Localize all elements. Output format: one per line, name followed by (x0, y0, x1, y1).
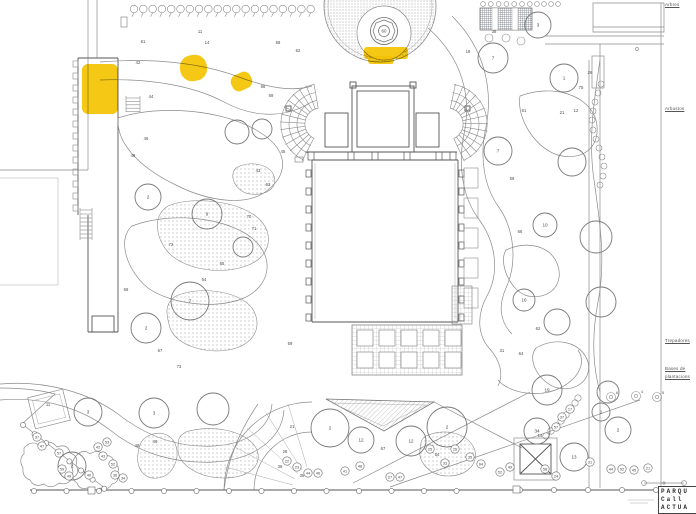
bush-icon (592, 99, 598, 105)
plan-number-label: 42 (136, 60, 141, 65)
pilaster (459, 224, 464, 231)
tree-number: 7 (497, 149, 500, 154)
stair-step (280, 126, 305, 130)
tree-number: 3 (537, 23, 540, 28)
fountain-label: 60 (382, 29, 387, 34)
street-tree-icon (223, 5, 231, 13)
planter-box (464, 258, 478, 278)
circled-number-text: 35 (468, 456, 472, 460)
pilaster (306, 260, 311, 267)
plan-number-label: 21 (290, 424, 295, 429)
stair-step (306, 86, 315, 109)
street-tree-stem (244, 13, 246, 17)
planter-box (464, 228, 478, 248)
street-tree-icon (158, 5, 166, 13)
street-tree-stem (299, 13, 301, 17)
scale-bar-icon (642, 481, 687, 486)
parterre-bed (423, 330, 439, 346)
pilaster (459, 260, 464, 267)
street-tree-stem (272, 13, 274, 17)
fence-post-icon (324, 488, 329, 493)
tree-number: 10 (542, 223, 548, 228)
pilaster (436, 152, 442, 160)
street-tree-stem (309, 13, 311, 17)
fence-post-icon (20, 422, 25, 427)
tree-number: 2 (71, 464, 74, 469)
plan-number-label: 14 (205, 40, 210, 45)
plan-number-label: 46 (144, 136, 149, 141)
fence-post-icon (619, 487, 624, 492)
stair-rail (80, 208, 92, 240)
legend-label-arbustos: Arbustos (665, 106, 684, 111)
shrub-symbol (609, 395, 612, 398)
street-tree-stem (225, 13, 227, 17)
circled-number-text: 57 (57, 452, 61, 456)
tree-number: 12 (358, 438, 364, 443)
street-tree-stem (290, 13, 292, 17)
wall-tooth (73, 109, 78, 115)
plan-number-label: 44 (149, 94, 154, 99)
street-tree-icon (130, 5, 138, 13)
tree-symbol (225, 120, 249, 144)
tree-number: 1 (600, 410, 603, 415)
plan-number-label: 62 (536, 326, 541, 331)
wall-tooth (73, 85, 78, 91)
street-tree-icon (214, 5, 222, 13)
fence-post-icon (161, 488, 166, 493)
plan-number-label: 67 (381, 446, 386, 451)
circled-number-text: 44 (609, 468, 613, 472)
small-tree-icon (502, 34, 510, 42)
pilaster (459, 206, 464, 213)
fence-post-icon (96, 488, 101, 493)
plan-number-label: 75 (579, 85, 584, 90)
fence-post-icon (226, 488, 231, 493)
wall-tooth (73, 145, 78, 151)
pergola-post-icon (488, 2, 493, 7)
street-tree-stem (160, 13, 162, 17)
highlight-marker (228, 69, 254, 93)
stair-step (463, 127, 488, 131)
pergola-post-icon (542, 2, 547, 7)
bush-icon (590, 127, 596, 133)
plan-number-label: 58 (276, 40, 281, 45)
plan-number-label: 70 (247, 214, 252, 219)
pilaster (459, 278, 464, 285)
tree-number: 2 (617, 428, 620, 433)
circled-number-text: 37 (35, 436, 39, 440)
stair-step (282, 129, 306, 137)
plan-number-label: 73 (177, 364, 182, 369)
fence-post-icon (551, 487, 556, 492)
parterre-bed (379, 352, 395, 368)
parterre-bed (423, 352, 439, 368)
circled-number-text: 52 (620, 468, 624, 472)
fence-post-icon (421, 488, 426, 493)
stair-step (453, 86, 463, 109)
circled-number-text: 45 (632, 469, 636, 473)
bush-icon (600, 173, 606, 179)
pilaster (306, 170, 311, 177)
circled-number-text: 37 (560, 416, 564, 420)
plan-number-label: 48 (135, 443, 140, 448)
street-tree-icon (288, 5, 296, 13)
legend-label-plantacions-1: Bases de (665, 366, 685, 371)
pergola-post-icon (527, 2, 532, 7)
bush-icon (596, 145, 602, 151)
circled-number-text: 27 (388, 476, 392, 480)
street-tree-stem (179, 13, 181, 17)
plan-number-label: 71 (252, 226, 257, 231)
plan-number-label: 26 (588, 70, 593, 75)
shrub-symbol (632, 392, 641, 401)
street-tree-stem (234, 13, 236, 17)
wall-tooth (73, 61, 78, 67)
title-block-line2: Call (661, 496, 696, 504)
plan-number-label: 45 (281, 149, 286, 154)
circled-number-text: 42 (96, 446, 100, 450)
stair-step (462, 130, 485, 139)
wall-tooth (73, 73, 78, 79)
street-tree-icon (140, 5, 148, 13)
tree-number: 1 (563, 76, 566, 81)
plan-number-label: 38 (492, 29, 497, 34)
tree-number: 7 (189, 299, 192, 304)
highlight-marker (178, 53, 208, 83)
stair-step (460, 101, 481, 115)
tree-number: 16 (521, 298, 527, 303)
circled-number-text: 36 (113, 474, 117, 478)
title-block: PARQU Call ACTUA (658, 486, 696, 514)
shrub-number: 4 (641, 389, 644, 394)
street-tree-stem (141, 13, 143, 17)
street-tree-stem (169, 13, 171, 17)
pergola (480, 8, 532, 30)
plan-number-label: 65 (220, 261, 225, 266)
shrub-symbol (634, 394, 637, 397)
fence-post-icon (129, 488, 134, 493)
circled-number-text: 21 (646, 467, 650, 471)
stair-step (458, 95, 476, 113)
stair-step (280, 122, 305, 123)
circled-number-text: 23 (295, 466, 299, 470)
fence-post-icon (356, 488, 361, 493)
parterre-bed (379, 330, 395, 346)
tree-number: 19 (544, 388, 550, 393)
plan-number-label: 64 (519, 351, 524, 356)
plan-number-label: 14 (538, 433, 543, 438)
fence-post-icon (88, 487, 95, 494)
circled-number-text: 52 (111, 463, 115, 467)
circled-number-text: 64 (479, 463, 483, 467)
plan-number-label: 59 (288, 341, 293, 346)
street-tree-icon (242, 5, 250, 13)
parterre-bed (445, 352, 461, 368)
stair-rail (126, 96, 140, 112)
street-tree-stem (188, 13, 190, 17)
parterre-bed (357, 330, 373, 346)
stair-step (450, 84, 455, 108)
fence-post-icon (64, 488, 69, 493)
tree-symbol (558, 148, 586, 176)
wall-tooth (73, 157, 78, 163)
wall-tooth (73, 181, 78, 187)
circled-number-text: 33 (443, 462, 447, 466)
stair-step (461, 133, 482, 146)
plan-number-label: 72 (169, 242, 174, 247)
street-tree-stem (151, 13, 153, 17)
pergola-post-icon (481, 2, 486, 7)
parterre-bed (401, 352, 417, 368)
street-tree-icon (177, 5, 185, 13)
small-tree-icon (485, 34, 493, 42)
parterre-bed (357, 352, 373, 368)
circled-number-text: 53 (105, 441, 109, 445)
tree-symbol (197, 393, 229, 425)
pilaster (306, 206, 311, 213)
plan-number-label: 11 (46, 402, 51, 407)
fence-post-icon (194, 488, 199, 493)
fence-post-icon (389, 488, 394, 493)
planter-box (464, 168, 478, 188)
plan-number-label: 61 (522, 108, 527, 113)
street-tree-icon (205, 5, 213, 13)
tree-number: 9 (206, 212, 209, 217)
street-tree-stem (132, 13, 134, 17)
tree-number: 2 (446, 425, 449, 430)
stair-arc (450, 108, 463, 138)
plan-number-label: 66 (124, 287, 129, 292)
circled-number-text: 25 (428, 448, 432, 452)
tree-symbol (586, 287, 616, 317)
highlight-marker (82, 64, 118, 114)
tree-number: 2 (147, 195, 150, 200)
pergola-post-icon (556, 2, 561, 7)
plan-number-label: 61 (141, 39, 146, 44)
small-tree-icon (517, 37, 525, 45)
fence-post-icon (102, 486, 107, 491)
shrub-symbol (653, 393, 662, 402)
street-tree-icon (279, 5, 287, 13)
street-tree-stem (197, 13, 199, 17)
street-tree-stem (216, 13, 218, 17)
pergola-post-icon (549, 2, 554, 7)
circled-number-text: 49 (508, 466, 512, 470)
shrub-number: 5 (662, 390, 665, 395)
circled-number-text: 40 (87, 474, 91, 478)
circled-number-text: 22 (285, 460, 289, 464)
parterre-bed (445, 330, 461, 346)
wall-tooth (73, 133, 78, 139)
street-tree-icon (167, 5, 175, 13)
bush-icon (575, 395, 581, 401)
stair-step (314, 84, 318, 109)
tree-symbol (580, 221, 612, 253)
stair-step (286, 132, 308, 145)
bush-icon (572, 400, 578, 406)
pilaster (348, 152, 354, 160)
pilaster (306, 314, 311, 321)
circled-number-text: 47 (398, 476, 402, 480)
pilaster (450, 152, 456, 160)
circled-number-text: 59 (60, 468, 64, 472)
wall-tooth (73, 97, 78, 103)
circled-number-text: 57 (554, 426, 558, 430)
circled-number-text: 44 (306, 472, 310, 476)
circled-number-text: 31 (588, 461, 592, 465)
pilaster (306, 188, 311, 195)
tree-number: 13 (571, 455, 577, 460)
plan-number-label: 11 (198, 29, 203, 34)
plan-number-label: 28 (283, 449, 288, 454)
legend-label-arbres: Arbres (665, 2, 679, 7)
plan-number-label: 36 (278, 464, 283, 469)
pilaster (306, 296, 311, 303)
pergola-post-icon (520, 2, 525, 7)
circled-number-text: 17 (568, 408, 572, 412)
bush-icon (601, 163, 607, 169)
tree-number: 2 (145, 326, 148, 331)
street-tree-icon (260, 5, 268, 13)
tree-number: 2 (329, 426, 332, 431)
highlight-marker (368, 56, 394, 64)
tree-symbol (252, 119, 272, 139)
pilaster (306, 242, 311, 249)
pilaster (308, 152, 314, 160)
plan-number-label: 31 (500, 348, 505, 353)
circled-number-text: 47 (40, 445, 44, 449)
circled-number-text: 34 (121, 477, 125, 481)
street-tree-stem (262, 13, 264, 17)
tree-number: 12 (408, 439, 414, 444)
pergola-post-icon (496, 2, 501, 7)
circled-number-text: 48 (358, 465, 362, 469)
street-tree-icon (233, 5, 241, 13)
circled-number-text: 43 (101, 455, 105, 459)
plan-number-label: 54 (435, 452, 440, 457)
street-tree-icon (270, 5, 278, 13)
tree-number: 3 (153, 411, 156, 416)
plan-number-label: 68 (261, 84, 266, 89)
pilaster (459, 242, 464, 249)
shrub-symbol (607, 393, 616, 402)
street-tree-stem (253, 13, 255, 17)
fence-post-icon (259, 488, 264, 493)
circled-number-text: 46 (316, 472, 320, 476)
shrub-symbol (655, 395, 658, 398)
pergola-post-icon (535, 2, 540, 7)
circled-number-text: 58 (543, 468, 547, 472)
fence-post-icon (454, 488, 459, 493)
plan-canvas: 2972371710161933221212234131264561421114… (0, 0, 696, 514)
plan-number-label: 66 (518, 229, 523, 234)
pergola-post-icon (512, 2, 517, 7)
plan-number-label: 18 (466, 49, 471, 54)
street-tree-icon (251, 5, 259, 13)
wall-tooth (73, 205, 78, 211)
street-tree-icon (298, 5, 306, 13)
pilaster (372, 152, 378, 160)
fence-post-icon (78, 468, 83, 473)
wall-tooth (73, 121, 78, 127)
street-tree-icon (307, 5, 315, 13)
plan-number-label: 43 (256, 168, 261, 173)
pilaster (404, 152, 410, 160)
street-tree-icon (195, 5, 203, 13)
plan-number-label: 48 (131, 153, 136, 158)
pilaster (459, 188, 464, 195)
site-plan-drawing: 2972371710161933221212234131264561421114… (0, 0, 696, 514)
plan-number-label: 21 (560, 110, 565, 115)
street-tree-icon (149, 5, 157, 13)
circled-number-text: 52 (498, 471, 502, 475)
plan-number-label: 67 (158, 348, 163, 353)
fence-post-icon (585, 487, 590, 492)
plan-number-label: 63 (266, 182, 271, 187)
title-block-line1: PARQU (661, 488, 696, 496)
pilaster (306, 224, 311, 231)
circled-number-text: 41 (343, 470, 347, 474)
plan-number-label: 59 (510, 176, 515, 181)
fence-post-icon (291, 488, 296, 493)
stair-step (456, 90, 470, 111)
stair-arc (305, 108, 318, 138)
tree-symbol (544, 309, 570, 335)
tree-number: 3 (87, 410, 90, 415)
plan-number-label: 64 (202, 277, 207, 282)
legend-label-trepadores: Trepadores (665, 338, 690, 343)
street-tree-stem (206, 13, 208, 17)
wall-tooth (73, 193, 78, 199)
title-block-line3: ACTUA (661, 504, 696, 512)
circled-number-text: 49 (67, 475, 71, 479)
fence-post-icon (31, 488, 36, 493)
street-tree-stem (281, 13, 283, 17)
plan-number-label: 12 (574, 108, 579, 113)
tree-number: 7 (492, 56, 495, 61)
circled-number-text: 26 (453, 448, 457, 452)
pergola-post-icon (504, 2, 509, 7)
legend-label-plantacions-2: plantacions (665, 374, 690, 379)
plan-number-label: 46 (153, 439, 158, 444)
bush-icon (598, 81, 604, 87)
parterre-bed (401, 330, 417, 346)
plan-number-label: 69 (269, 93, 274, 98)
circled-number-text: 24 (554, 475, 558, 479)
street-tree-icon (186, 5, 194, 13)
pilaster (306, 278, 311, 285)
fence-post-icon (513, 486, 520, 493)
plan-number-label: 62 (296, 48, 301, 53)
